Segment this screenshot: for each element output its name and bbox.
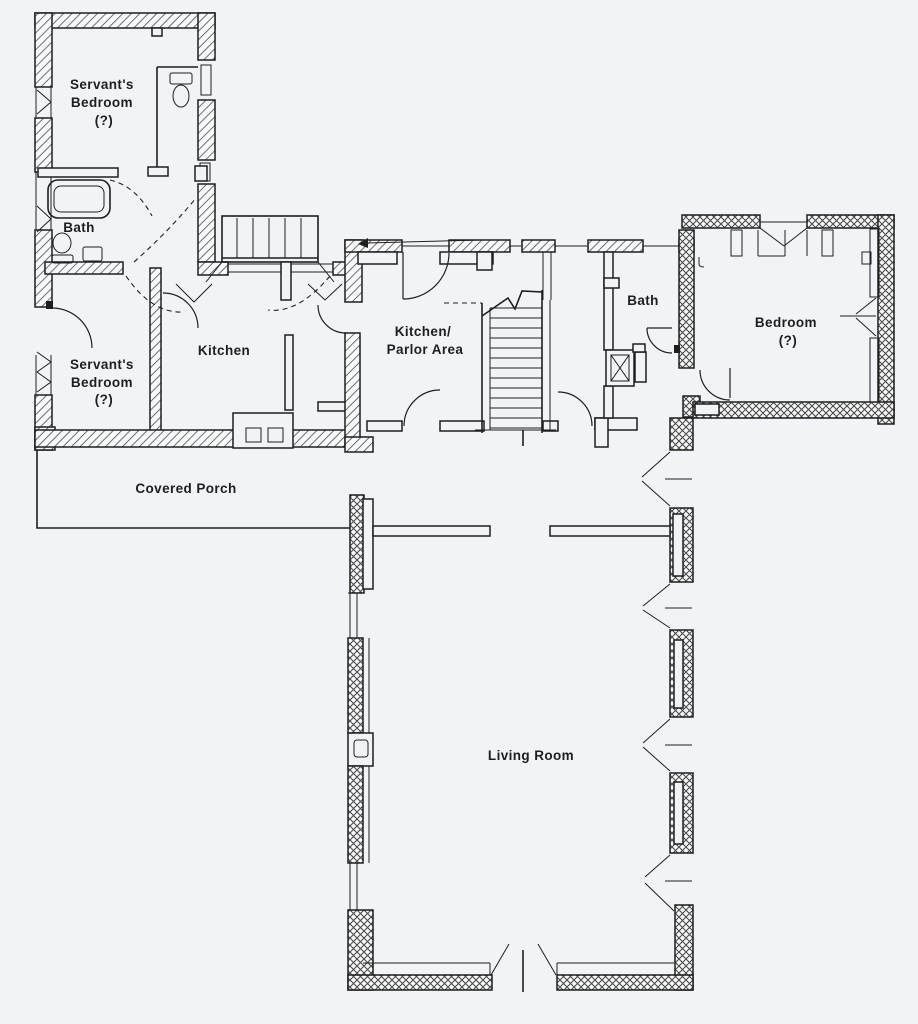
room-label-kitchen: Kitchen xyxy=(198,343,250,358)
window-panel xyxy=(674,782,683,844)
window-panel xyxy=(674,640,683,708)
window-panel xyxy=(673,514,683,576)
door-hinge-block xyxy=(46,301,53,309)
room-label-bath-right: Bath xyxy=(627,293,659,308)
bath-shelf xyxy=(38,168,118,177)
room-label-bath-upper-left: Bath xyxy=(63,220,95,235)
floor-plan: Servant's Bedroom (?) Bath Servant's Bed… xyxy=(0,0,918,1024)
floor-plan-drawing: Servant's Bedroom (?) Bath Servant's Bed… xyxy=(0,0,918,1024)
kitchen-stove xyxy=(233,413,293,448)
window-seat xyxy=(358,252,397,264)
room-label-living-room: Living Room xyxy=(488,748,574,763)
paper-background xyxy=(0,0,918,1024)
stair-rail-post xyxy=(281,262,291,300)
room-label-covered-porch: Covered Porch xyxy=(135,481,236,496)
kitchen-partition xyxy=(285,335,293,410)
